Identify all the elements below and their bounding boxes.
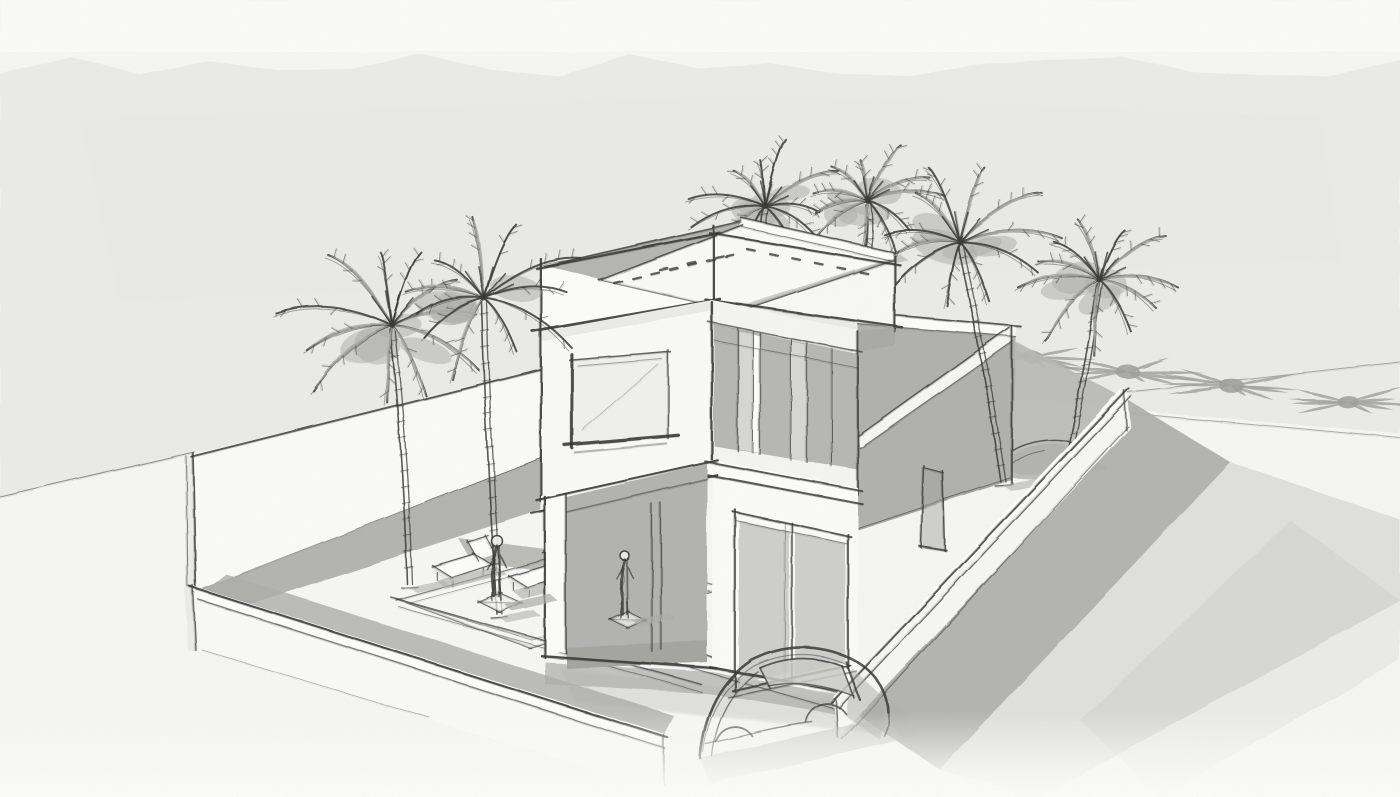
sketch-canvas [0,0,1400,797]
sketch-page [0,0,1400,797]
paper-texture [0,0,1400,797]
